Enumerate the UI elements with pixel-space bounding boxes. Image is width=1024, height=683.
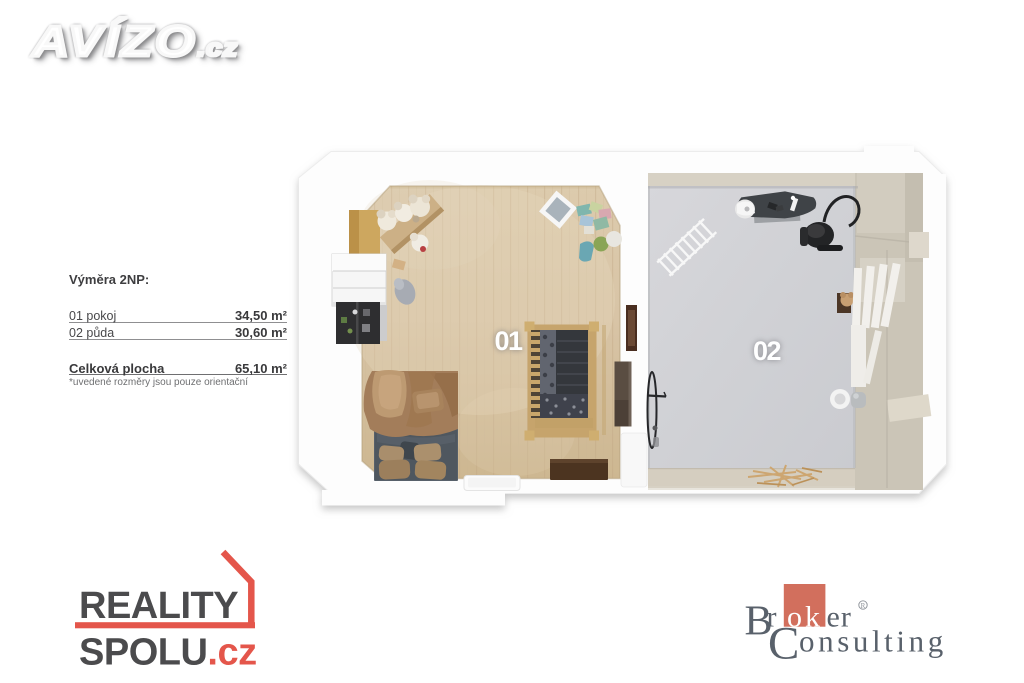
svg-text:REALITY: REALITY [79, 585, 238, 627]
svg-text:02: 02 [753, 336, 781, 366]
svg-text:C: C [768, 618, 799, 670]
svg-text:onsulting: onsulting [799, 624, 947, 659]
svg-text:01: 01 [495, 326, 524, 356]
svg-text:R: R [861, 602, 866, 610]
svg-text:SPOLU.cz: SPOLU.cz [79, 632, 257, 674]
